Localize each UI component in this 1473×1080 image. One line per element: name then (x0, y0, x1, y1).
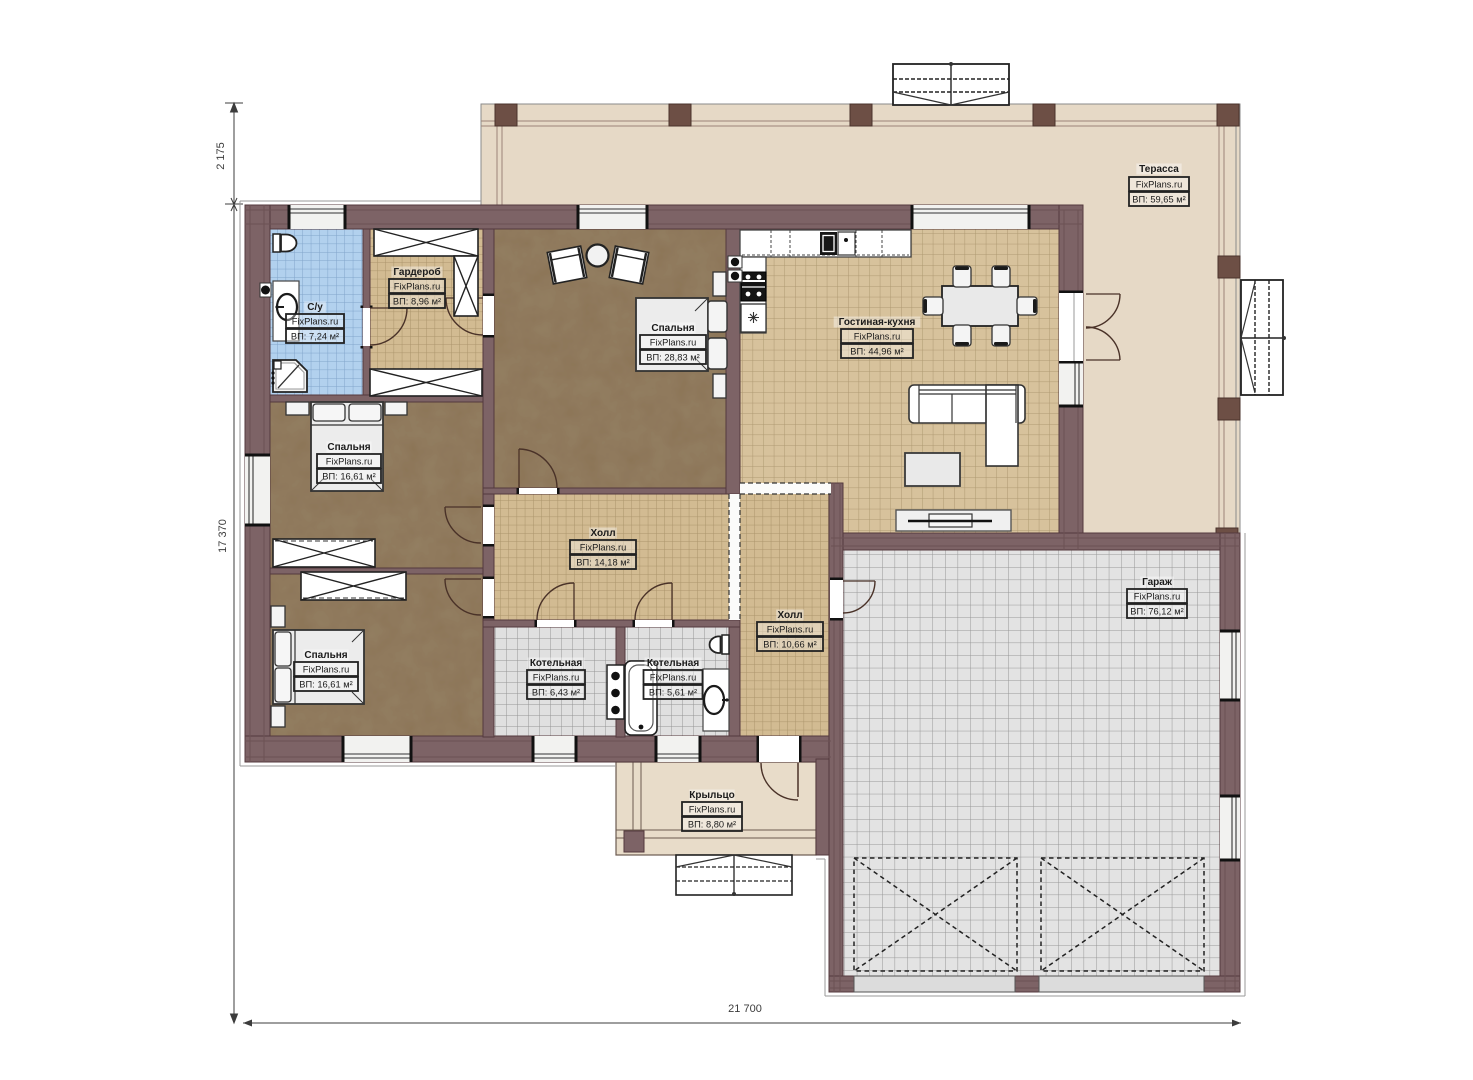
svg-text:FixPlans.ru: FixPlans.ru (689, 805, 736, 815)
svg-text:Гараж: Гараж (1142, 577, 1173, 588)
svg-text:ВП: 10,66 м²: ВП: 10,66 м² (763, 640, 816, 650)
svg-text:FixPlans.ru: FixPlans.ru (580, 543, 627, 553)
svg-text:FixPlans.ru: FixPlans.ru (650, 673, 697, 683)
svg-text:2 175: 2 175 (215, 142, 227, 170)
svg-text:ВП: 28,83 м²: ВП: 28,83 м² (646, 353, 699, 363)
svg-text:21 700: 21 700 (728, 1003, 762, 1015)
svg-text:Гостиная-кухня: Гостиная-кухня (839, 317, 916, 328)
svg-text:С/у: С/у (307, 302, 323, 313)
svg-text:FixPlans.ru: FixPlans.ru (1136, 180, 1183, 190)
svg-text:ВП: 14,18 м²: ВП: 14,18 м² (576, 558, 629, 568)
svg-text:ВП: 76,12 м²: ВП: 76,12 м² (1130, 607, 1183, 617)
svg-text:ВП: 8,80 м²: ВП: 8,80 м² (688, 820, 736, 830)
svg-text:FixPlans.ru: FixPlans.ru (303, 665, 350, 675)
svg-text:Гардероб: Гардероб (393, 266, 440, 278)
svg-text:Терасса: Терасса (1139, 164, 1179, 175)
svg-text:Холл: Холл (590, 528, 615, 539)
svg-text:ВП: 44,96 м²: ВП: 44,96 м² (850, 347, 903, 357)
svg-text:FixPlans.ru: FixPlans.ru (292, 317, 339, 327)
svg-text:Спальня: Спальня (327, 442, 370, 453)
svg-text:ВП: 8,96 м²: ВП: 8,96 м² (393, 297, 441, 307)
svg-text:FixPlans.ru: FixPlans.ru (326, 457, 373, 467)
svg-text:FixPlans.ru: FixPlans.ru (650, 338, 697, 348)
svg-text:ВП: 7,24 м²: ВП: 7,24 м² (291, 332, 339, 342)
svg-text:Холл: Холл (777, 610, 802, 621)
svg-text:Крыльцо: Крыльцо (689, 790, 735, 801)
svg-text:Котельная: Котельная (530, 658, 583, 669)
svg-text:Спальня: Спальня (651, 323, 694, 334)
svg-text:Спальня: Спальня (304, 650, 347, 661)
svg-text:ВП: 16,61 м²: ВП: 16,61 м² (322, 472, 375, 482)
svg-text:17 370: 17 370 (217, 519, 229, 553)
svg-text:FixPlans.ru: FixPlans.ru (767, 625, 814, 635)
svg-text:FixPlans.ru: FixPlans.ru (394, 282, 441, 292)
svg-text:Котельная: Котельная (647, 658, 700, 669)
svg-text:ВП: 5,61 м²: ВП: 5,61 м² (649, 688, 697, 698)
svg-text:ВП: 16,61 м²: ВП: 16,61 м² (299, 680, 352, 690)
svg-text:ВП: 6,43 м²: ВП: 6,43 м² (532, 688, 580, 698)
svg-text:FixPlans.ru: FixPlans.ru (1134, 592, 1181, 602)
svg-text:FixPlans.ru: FixPlans.ru (854, 332, 901, 342)
svg-text:FixPlans.ru: FixPlans.ru (533, 673, 580, 683)
svg-text:ВП: 59,65 м²: ВП: 59,65 м² (1132, 195, 1185, 205)
